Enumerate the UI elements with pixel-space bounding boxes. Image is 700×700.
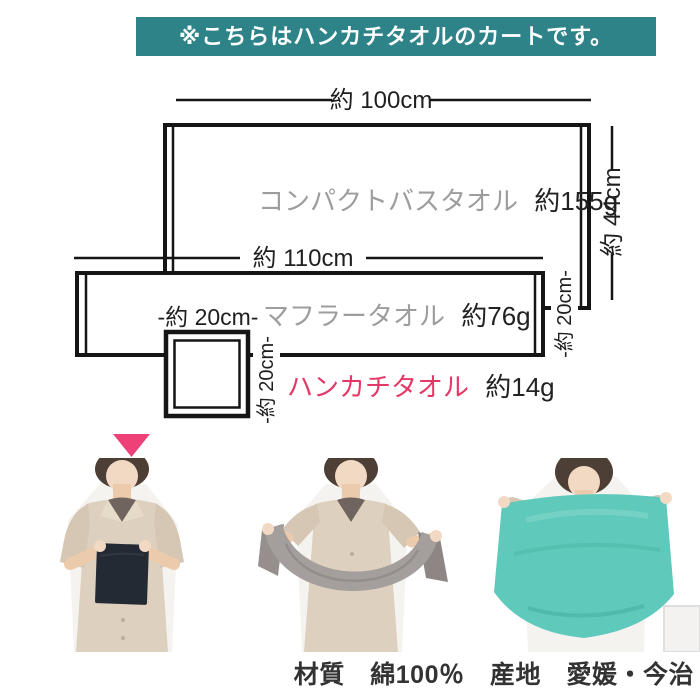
dim-44cm-label: 約 44cm [599,167,626,256]
dim-20cm-square-side-label: -約 20cm- [255,336,278,424]
dim-100cm-label: 約 100cm [330,87,433,114]
shirt-button [121,636,125,640]
model-left-hand [94,540,106,552]
handkerchief-towel-weight: 約14g [485,372,554,402]
bath-towel-label: コンパクトバスタオル 約155g [258,186,618,216]
model-right-hand [430,530,442,542]
model-holding-muffler-towel [236,458,462,652]
bath-towel-name: コンパクトバスタオル [258,186,518,216]
dim-20cm-muffler-label: -約 20cm- [553,270,576,358]
model-holding-handkerchief-towel [30,458,213,652]
handkerchief-towel-label: ハンカチタオル 約14g [287,372,555,402]
shirt-button [350,552,354,556]
model-holding-compact-bath-towel [468,458,700,652]
handkerchief-towel-rect [166,332,248,416]
dim-110cm-label: 約 110cm [253,245,354,272]
photo-muffler-towel [236,458,462,652]
handkerchief-towel-name: ハンカチタオル [287,372,469,402]
material-origin-text: 材質 綿100％ 産地 愛媛・今治 [294,655,694,691]
muffler-towel-weight: 約76g [461,301,530,331]
pink-down-arrow-icon [113,434,150,457]
photo-handkerchief-towel [30,458,213,652]
table-edge [664,606,700,652]
muffler-towel-label: マフラータオル 約76g [263,301,531,331]
model-left-hand [498,496,510,508]
model-right-hand [139,540,151,552]
photo-compact-bath-towel [468,458,700,652]
muffler-towel-name: マフラータオル [263,301,445,331]
product-infographic: ※こちらはハンカチタオルのカートです。 約 100cm コンパクトバスタオル 約… [0,0,700,700]
model-left-hand [262,523,274,535]
shirt-button [121,618,125,622]
dim-20cm-square-top-label: -約 20cm- [158,304,259,330]
handkerchief-towel-photo [95,543,149,605]
model-right-hand [660,492,672,504]
